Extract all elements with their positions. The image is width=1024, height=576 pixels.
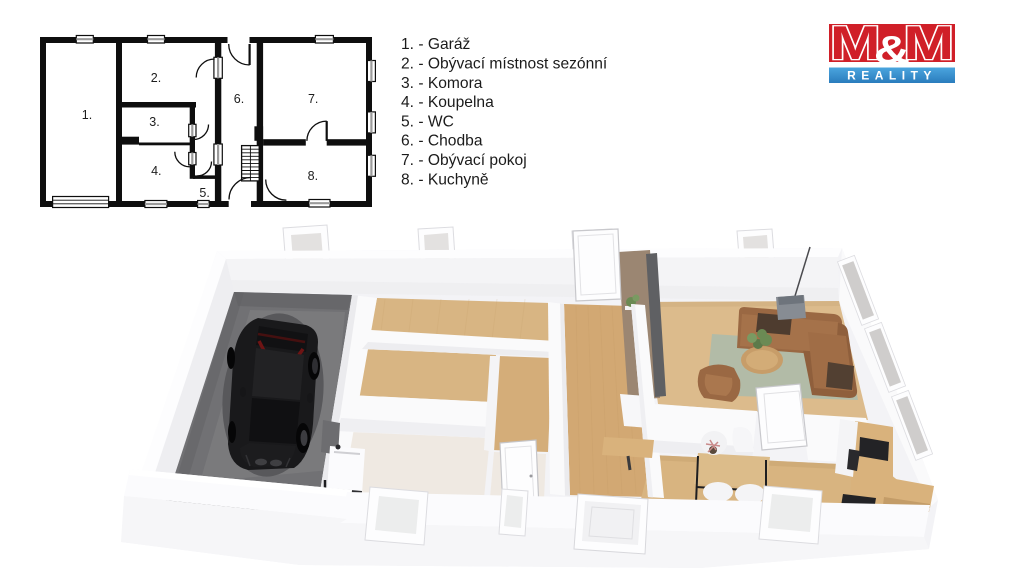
svg-text:2.: 2. xyxy=(151,71,161,85)
svg-text:5. - WC: 5. - WC xyxy=(401,113,454,130)
svg-text:7.: 7. xyxy=(308,92,318,106)
svg-text:8.: 8. xyxy=(308,169,318,183)
svg-text:REALITY: REALITY xyxy=(847,69,937,83)
svg-text:&: & xyxy=(874,27,910,71)
svg-text:2. - Obývací místnost sezónní: 2. - Obývací místnost sezónní xyxy=(401,56,608,73)
svg-text:M: M xyxy=(903,16,954,69)
svg-text:6.: 6. xyxy=(234,92,244,106)
svg-text:4. - Koupelna: 4. - Koupelna xyxy=(401,94,494,111)
svg-text:3. - Komora: 3. - Komora xyxy=(401,75,483,92)
svg-text:6. - Chodba: 6. - Chodba xyxy=(401,133,483,150)
svg-text:1.: 1. xyxy=(82,108,92,122)
svg-text:5.: 5. xyxy=(199,186,209,200)
svg-text:3.: 3. xyxy=(149,115,159,129)
svg-text:1. - Garáž: 1. - Garáž xyxy=(401,36,471,53)
svg-text:4.: 4. xyxy=(151,164,161,178)
svg-text:7. - Obývací pokoj: 7. - Obývací pokoj xyxy=(401,152,527,169)
svg-text:8. - Kuchyně: 8. - Kuchyně xyxy=(401,171,489,188)
